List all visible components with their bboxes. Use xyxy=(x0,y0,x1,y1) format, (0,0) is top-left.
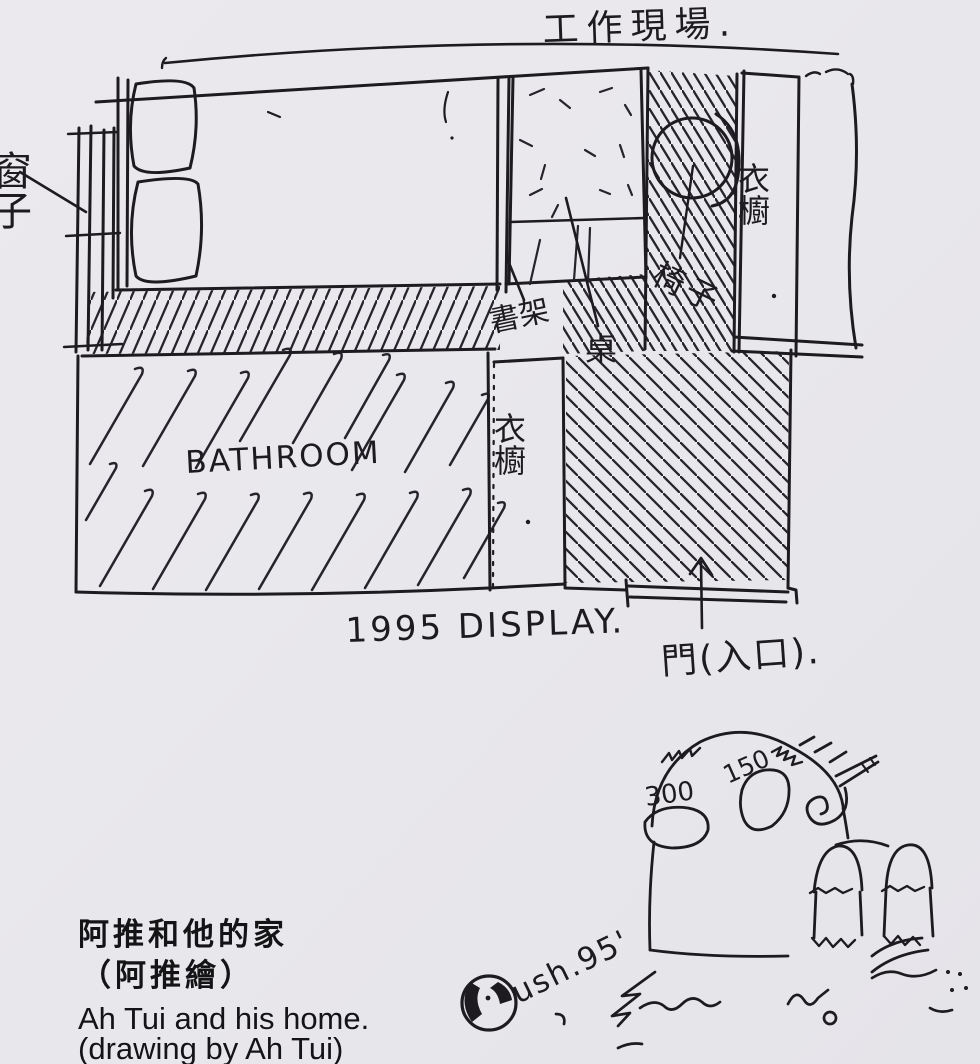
caption-credit-zh: （阿推繪） xyxy=(80,958,255,993)
desk-label: 桌 xyxy=(585,330,617,368)
floorplan-sketch: 窗子 工作現場. 書架 桌 椅子 衣櫥 衣櫥 BATHROOM 1995 DIS… xyxy=(0,0,980,1064)
scanned-sketch-page: 窗子 工作現場. 書架 桌 椅子 衣櫥 衣櫥 BATHROOM 1995 DIS… xyxy=(0,0,980,1064)
wardrobe-middle-label: 衣櫥 xyxy=(489,412,527,476)
caption-credit-en: (drawing by Ah Tui) xyxy=(78,1031,343,1064)
wardrobe-right-dot xyxy=(772,294,776,298)
window-label: 窗子 xyxy=(0,150,31,230)
caption-title-zh: 阿推和他的家 xyxy=(78,917,288,952)
wardrobe-right-label: 衣櫥 xyxy=(733,162,771,226)
signature-ball-dot xyxy=(486,996,491,1001)
worksite-title: 工作現場. xyxy=(542,3,739,51)
wardrobe-middle-dot xyxy=(526,520,530,524)
